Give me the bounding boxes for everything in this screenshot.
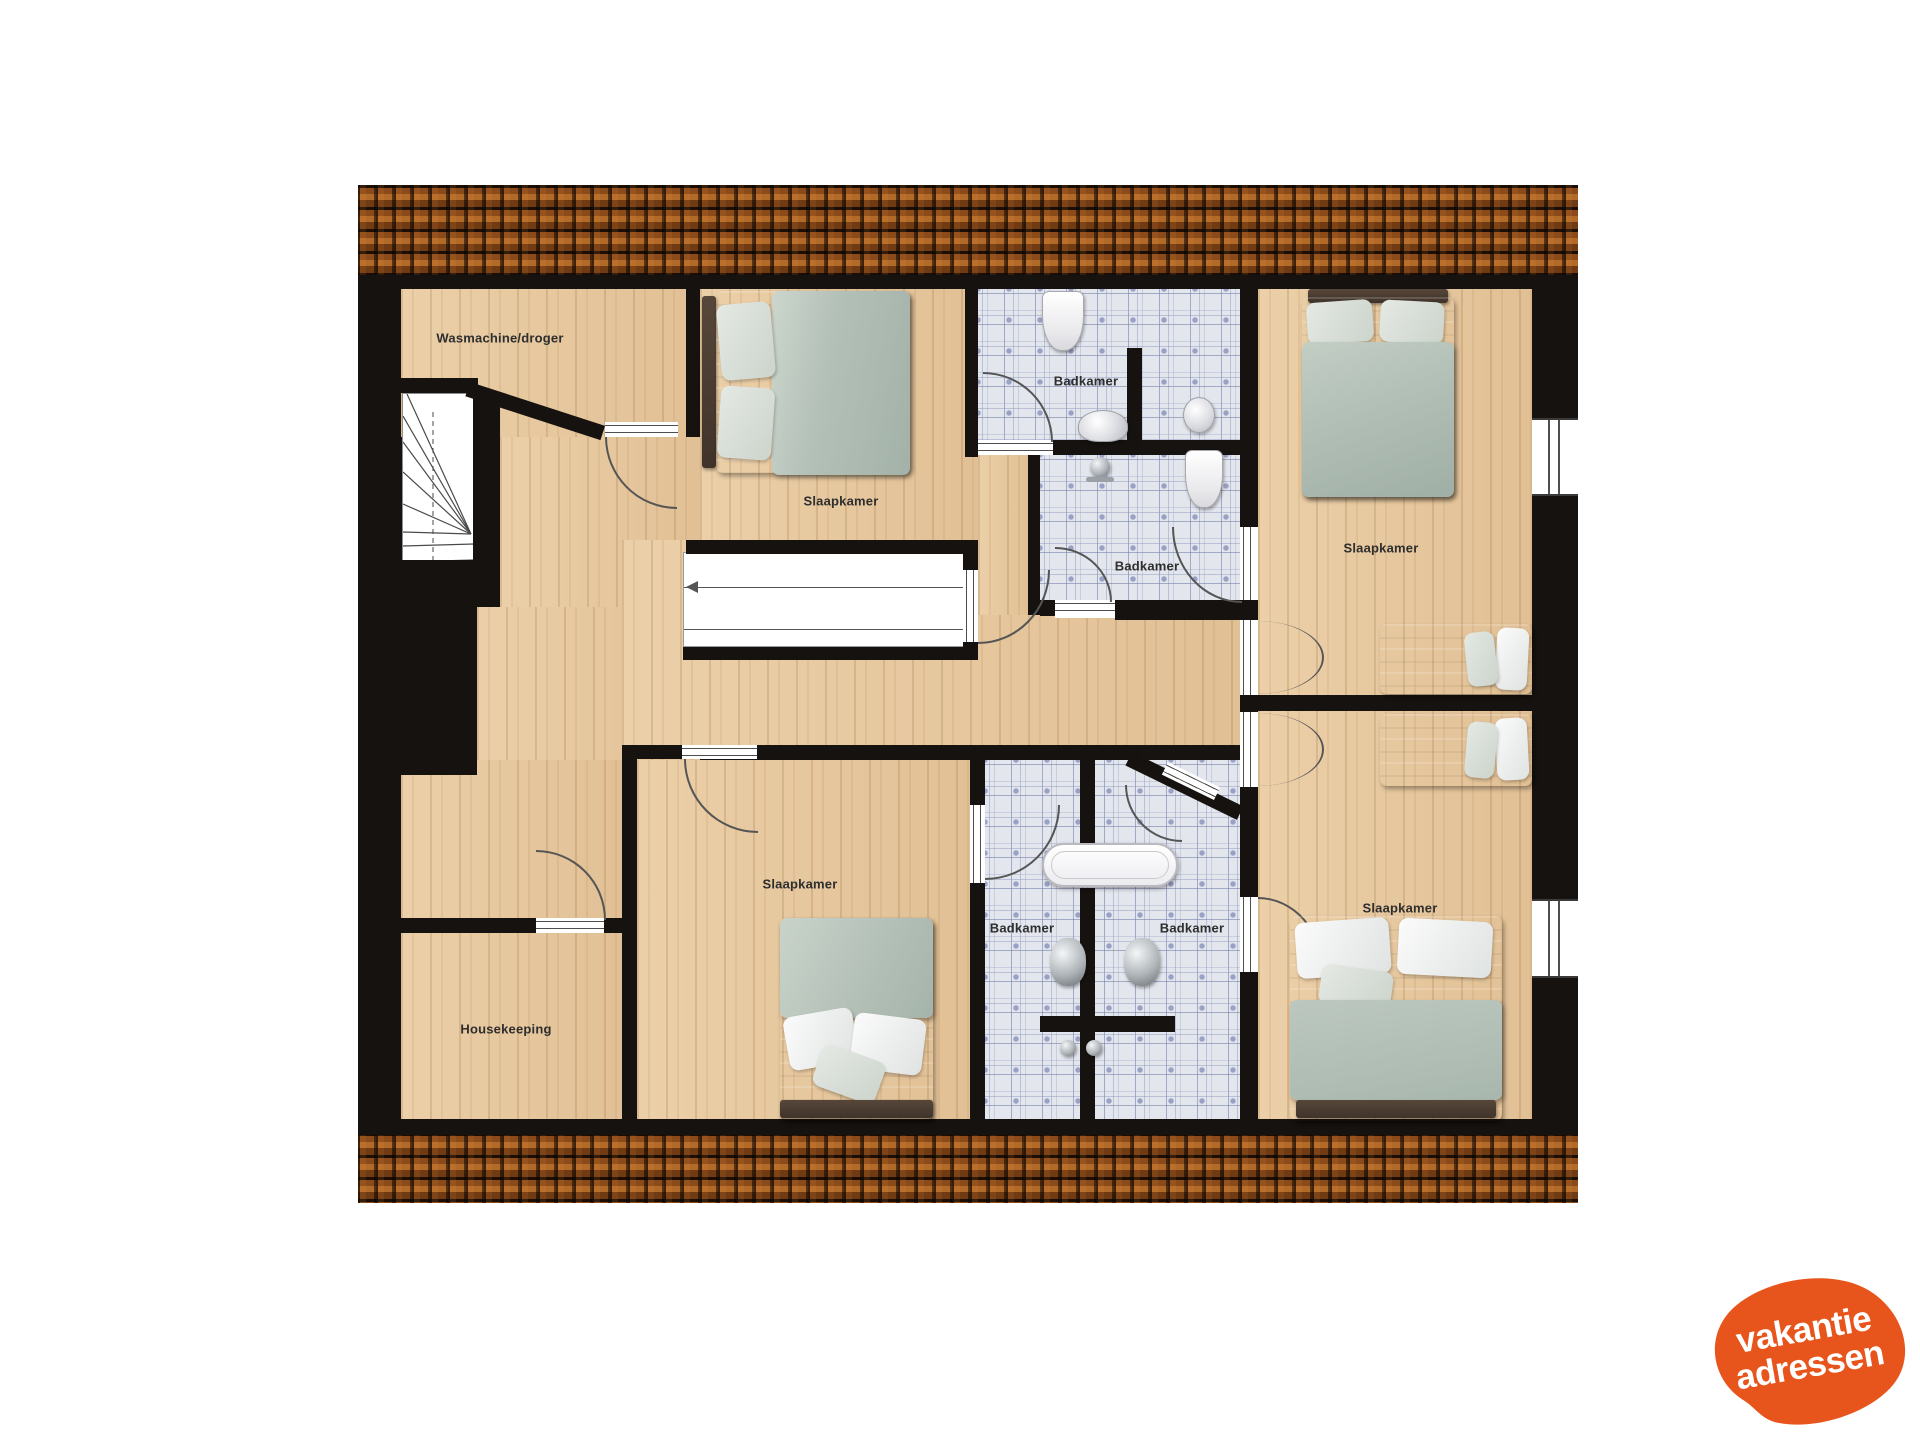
wall <box>1240 972 1258 1121</box>
wall <box>686 277 700 437</box>
window-right-lower <box>1532 899 1578 978</box>
wall <box>686 540 965 554</box>
wall <box>970 760 985 805</box>
room-label-bedroom-top-right: Slaapkamer <box>1344 541 1419 556</box>
floor-plan-page: Wasmachine/droger Slaapkamer Badkamer Ba… <box>0 0 1920 1440</box>
wall <box>963 540 978 570</box>
bathtub-icon <box>1042 843 1178 887</box>
room-label-bedroom-center: Slaapkamer <box>763 877 838 892</box>
shower-icon <box>1090 457 1110 477</box>
wall <box>637 745 682 759</box>
wall <box>757 745 1140 760</box>
door-threshold-hall <box>963 570 978 642</box>
door-threshold-cabin-a <box>1240 620 1258 695</box>
room-label-housekeeping: Housekeeping <box>460 1022 551 1037</box>
room-label-laundry: Wasmachine/droger <box>436 331 563 346</box>
door-threshold-bedroom-center <box>682 745 757 759</box>
room-label-bathroom-middle: Badkamer <box>1115 559 1179 574</box>
shower-rail-icon <box>1086 477 1114 482</box>
room-label-bedroom-bottom-right: Slaapkamer <box>1363 901 1438 916</box>
wall <box>970 883 985 1121</box>
door-threshold-cabin-b <box>1240 712 1258 787</box>
wall <box>1240 695 1532 711</box>
toilet-icon <box>1042 291 1084 351</box>
wall <box>963 642 978 660</box>
sink-icon <box>1078 410 1128 442</box>
window-right-upper <box>1532 418 1578 496</box>
wall <box>1040 1016 1175 1032</box>
door-threshold-bathroom-top <box>978 440 1053 455</box>
faucet-icon <box>1060 1040 1076 1056</box>
logo-vakantieadressen: vakantie adressen <box>1693 1267 1920 1441</box>
wall <box>473 393 500 607</box>
sink-icon <box>1050 938 1086 986</box>
wall <box>358 378 478 393</box>
door-threshold-bathroom-middle <box>1055 600 1115 618</box>
stair-direction-arrow-icon <box>686 581 698 593</box>
roof-strip-top <box>358 185 1578 277</box>
sink-icon <box>1183 397 1215 433</box>
wall-outer-right <box>1532 275 1578 1135</box>
wall <box>1240 787 1258 897</box>
wall <box>1053 440 1130 455</box>
wall <box>1127 348 1142 455</box>
door-threshold-ensuite <box>970 805 985 883</box>
stair-void-line <box>684 587 964 588</box>
stair-void <box>683 552 965 647</box>
wall <box>683 647 965 660</box>
wall <box>965 277 978 457</box>
door-threshold-bedroom-bottom-right <box>1240 897 1258 972</box>
room-label-bathroom-bottom-right: Badkamer <box>1160 921 1224 936</box>
door-threshold-laundry <box>605 422 678 437</box>
wall <box>1240 277 1258 527</box>
floor-hall-housekeeping <box>401 760 622 1121</box>
wall <box>622 745 637 1121</box>
sink-icon <box>1124 938 1160 986</box>
wall-outer-bottom <box>358 1119 1578 1135</box>
wall <box>1080 760 1095 845</box>
wall-stair-block <box>365 560 477 775</box>
roof-strip-bottom <box>358 1133 1578 1203</box>
toilet-icon <box>1185 450 1223 508</box>
wall <box>604 918 622 933</box>
wall <box>1115 600 1258 620</box>
room-label-bathroom-top: Badkamer <box>1054 374 1118 389</box>
room-label-bedroom-top-middle: Slaapkamer <box>804 494 879 509</box>
wall <box>358 918 536 933</box>
door-threshold-housekeeping <box>536 918 604 933</box>
faucet-icon <box>1086 1040 1102 1056</box>
room-label-bathroom-bottom-left: Badkamer <box>990 921 1054 936</box>
stair-void-line <box>684 629 964 630</box>
door-threshold-bathroom-middle-east <box>1240 527 1258 600</box>
